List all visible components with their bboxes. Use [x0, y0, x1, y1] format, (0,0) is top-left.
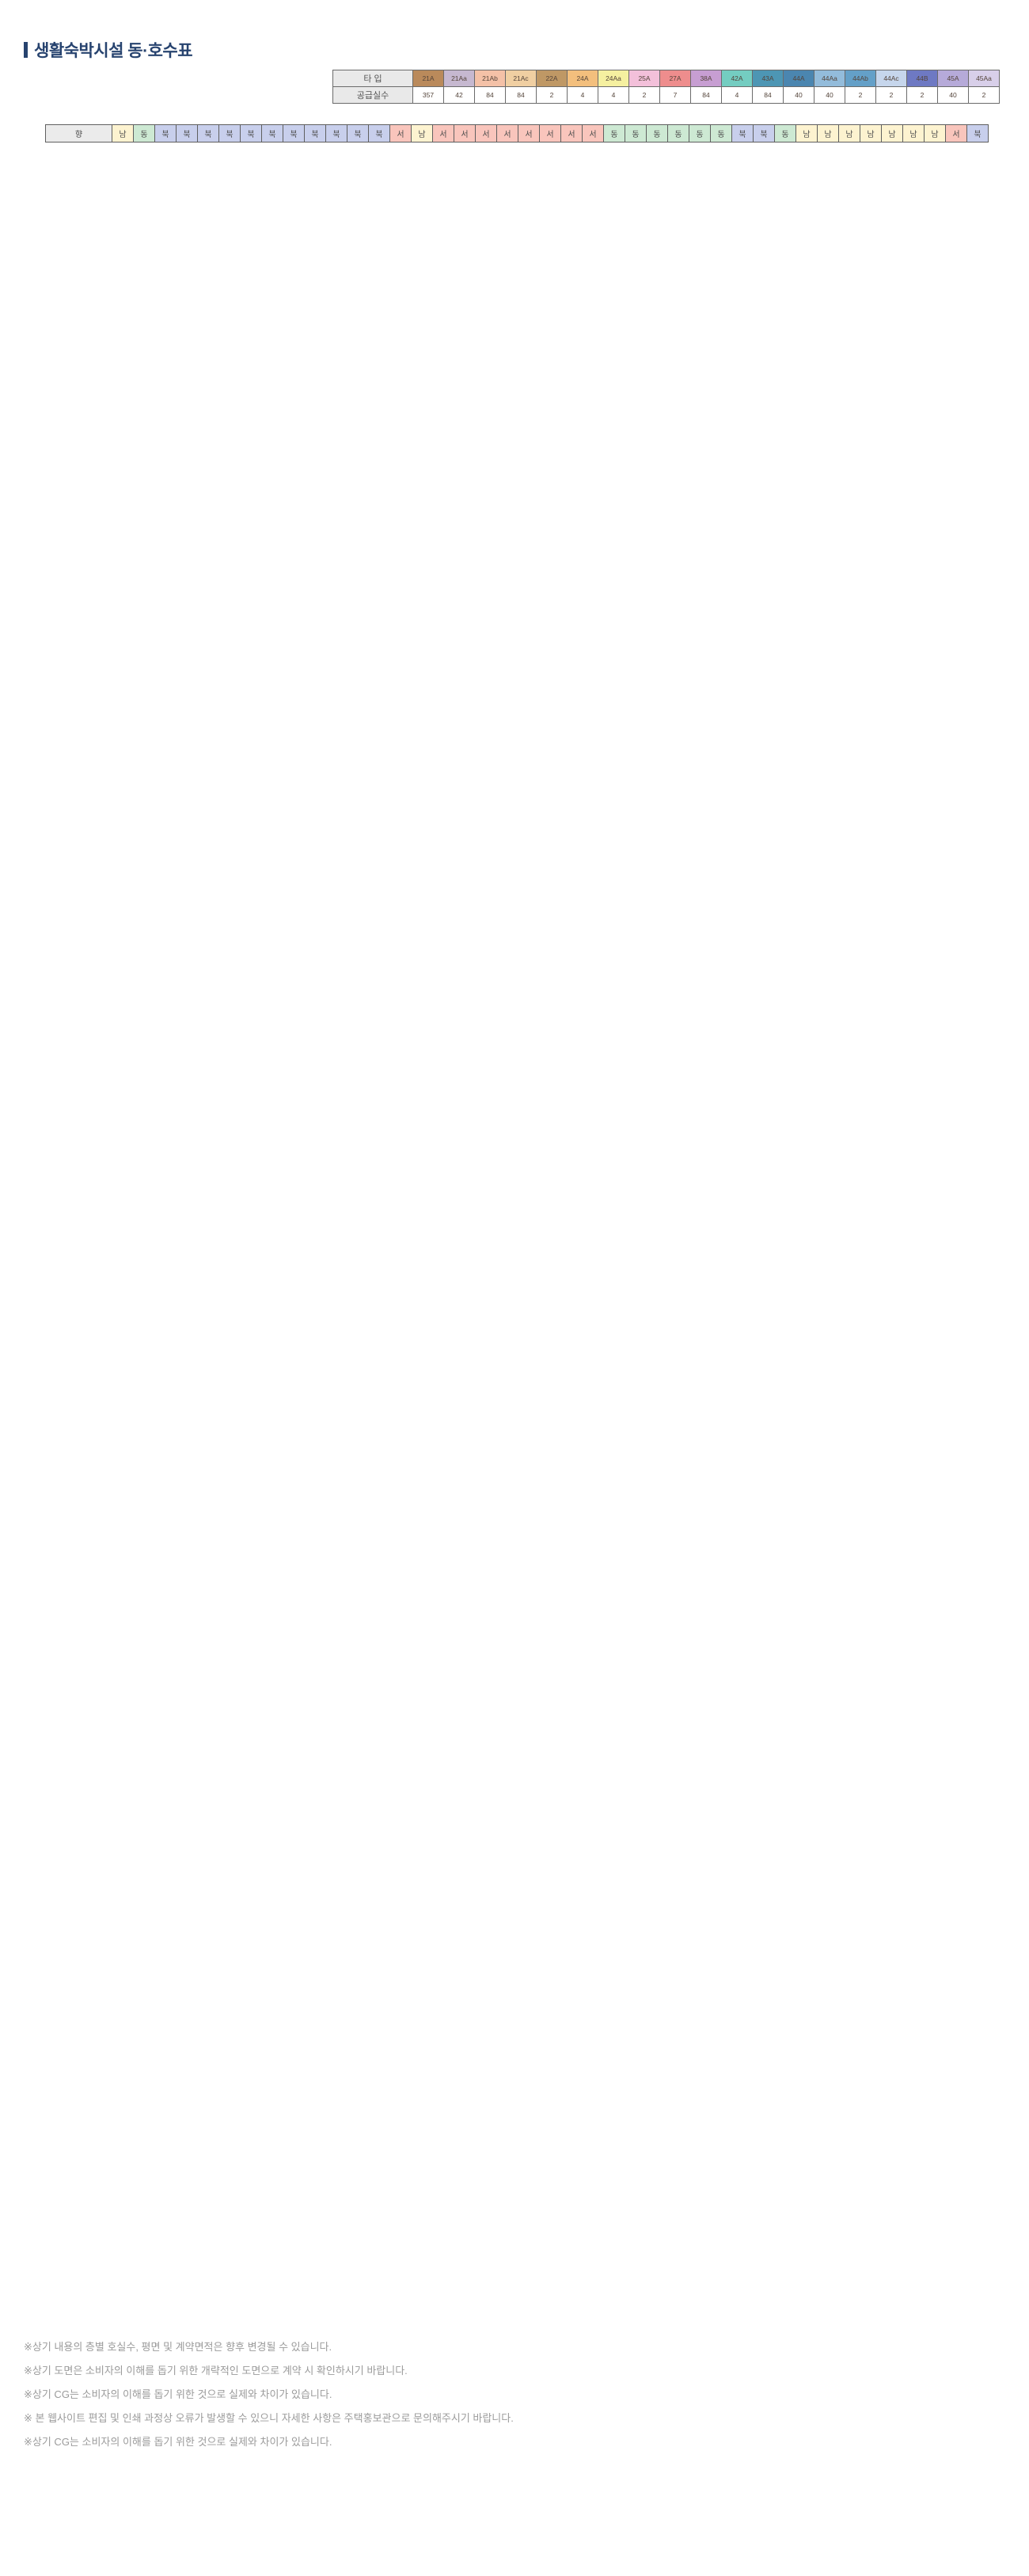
direction-cell: 북 [326, 125, 347, 142]
page-title: 생활숙박시설 동·호수표 [24, 38, 192, 62]
note-line: ※상기 CG는 소비자의 이해를 돕기 위한 것으로 실제와 차이가 있습니다. [24, 2430, 514, 2454]
direction-cell: 동 [689, 125, 711, 142]
direction-cell: 남 [882, 125, 903, 142]
legend-type-label: 타 입 [333, 70, 413, 87]
legend-type-cell: 25A [629, 70, 660, 87]
direction-cell: 북 [967, 125, 989, 142]
legend-count-cell: 40 [938, 87, 969, 104]
legend-type-cell: 21A [413, 70, 444, 87]
page: 생활숙박시설 동·호수표 타 입21A21Aa21Ab21Ac22A24A24A… [0, 0, 1029, 2576]
direction-cell: 북 [369, 125, 390, 142]
direction-cell: 서 [390, 125, 412, 142]
direction-cell: 남 [818, 125, 839, 142]
direction-cell: 북 [177, 125, 198, 142]
direction-cell: 북 [241, 125, 262, 142]
direction-cell: 남 [112, 125, 134, 142]
legend-type-cell: 42A [722, 70, 753, 87]
direction-cell: 북 [283, 125, 305, 142]
direction-cell: 서 [476, 125, 497, 142]
note-line: ※상기 CG는 소비자의 이해를 돕기 위한 것으로 실제와 차이가 있습니다. [24, 2383, 514, 2407]
legend-count-cell: 2 [969, 87, 1000, 104]
direction-cell: 동 [711, 125, 732, 142]
legend-type-cell: 44B [907, 70, 938, 87]
direction-cell: 북 [262, 125, 283, 142]
legend-type-cell: 27A [660, 70, 691, 87]
legend-count-cell: 4 [722, 87, 753, 104]
legend-type-cell: 38A [691, 70, 722, 87]
direction-cell: 동 [134, 125, 155, 142]
legend-type-cell: 21Ab [475, 70, 506, 87]
note-line: ※상기 도면은 소비자의 이해를 돕기 위한 개략적인 도면으로 계약 시 확인… [24, 2359, 514, 2383]
legend-type-cell: 44Ab [845, 70, 876, 87]
direction-cell: 북 [155, 125, 177, 142]
direction-cell: 남 [925, 125, 946, 142]
legend-count-cell: 40 [784, 87, 814, 104]
legend-count-cell: 40 [814, 87, 845, 104]
footer-notes: ※상기 내용의 층별 호실수, 평면 및 계약면적은 향후 변경될 수 있습니다… [24, 2335, 514, 2454]
legend-count-cell: 2 [629, 87, 660, 104]
direction-cell: 서 [518, 125, 540, 142]
direction-cell: 서 [497, 125, 518, 142]
direction-cell: 남 [860, 125, 882, 142]
direction-cell: 남 [796, 125, 818, 142]
unit-number-table-wrap: 향남동북북북북북북북북북북북서남서서서서서서서서동동동동동동북북동남남남남남남남… [45, 124, 989, 142]
legend-count-cell: 4 [568, 87, 598, 104]
legend-count-cell: 84 [475, 87, 506, 104]
direction-cell: 남 [903, 125, 925, 142]
legend-count-cell: 2 [845, 87, 876, 104]
direction-cell: 동 [647, 125, 668, 142]
legend-count-cell: 42 [444, 87, 475, 104]
direction-cell: 북 [732, 125, 754, 142]
unit-number-table: 향남동북북북북북북북북북북북서남서서서서서서서서동동동동동동북북동남남남남남남남… [45, 124, 989, 142]
direction-cell: 북 [754, 125, 775, 142]
direction-cell: 서 [540, 125, 561, 142]
direction-cell: 북 [347, 125, 369, 142]
direction-cell: 서 [583, 125, 604, 142]
legend-type-cell: 43A [753, 70, 784, 87]
direction-cell: 서 [454, 125, 476, 142]
legend-count-cell: 2 [876, 87, 907, 104]
direction-cell: 동 [775, 125, 796, 142]
page-title-text: 생활숙박시설 동·호수표 [34, 38, 192, 62]
legend-type-cell: 44A [784, 70, 814, 87]
direction-cell: 북 [219, 125, 241, 142]
direction-cell: 동 [625, 125, 647, 142]
legend-type-cell: 24A [568, 70, 598, 87]
direction-cell: 동 [668, 125, 689, 142]
legend-count-cell: 2 [907, 87, 938, 104]
legend-count-cell: 84 [753, 87, 784, 104]
legend-type-cell: 45A [938, 70, 969, 87]
direction-cell: 서 [946, 125, 967, 142]
legend-type-cell: 24Aa [598, 70, 629, 87]
note-line: ※ 본 웹사이트 편집 및 인쇄 과정상 오류가 발생할 수 있으니 자세한 사… [24, 2407, 514, 2430]
legend-count-cell: 84 [506, 87, 537, 104]
legend-count-cell: 84 [691, 87, 722, 104]
legend-type-cell: 45Aa [969, 70, 1000, 87]
direction-cell: 남 [839, 125, 860, 142]
legend-count-cell: 357 [413, 87, 444, 104]
legend-count-cell: 2 [537, 87, 568, 104]
title-accent-bar [24, 42, 28, 58]
direction-cell: 북 [198, 125, 219, 142]
direction-cell: 남 [412, 125, 433, 142]
note-line: ※상기 내용의 층별 호실수, 평면 및 계약면적은 향후 변경될 수 있습니다… [24, 2335, 514, 2359]
direction-cell: 서 [561, 125, 583, 142]
direction-header: 향 [46, 125, 112, 142]
legend-type-cell: 44Ac [876, 70, 907, 87]
direction-cell: 동 [604, 125, 625, 142]
legend-type-cell: 44Aa [814, 70, 845, 87]
direction-cell: 북 [305, 125, 326, 142]
legend-type-cell: 21Aa [444, 70, 475, 87]
legend-count-cell: 4 [598, 87, 629, 104]
direction-cell: 서 [433, 125, 454, 142]
legend-count-cell: 7 [660, 87, 691, 104]
legend-supply-label: 공급실수 [333, 87, 413, 104]
legend-type-cell: 21Ac [506, 70, 537, 87]
type-legend-table: 타 입21A21Aa21Ab21Ac22A24A24Aa25A27A38A42A… [332, 70, 1000, 104]
legend-type-cell: 22A [537, 70, 568, 87]
